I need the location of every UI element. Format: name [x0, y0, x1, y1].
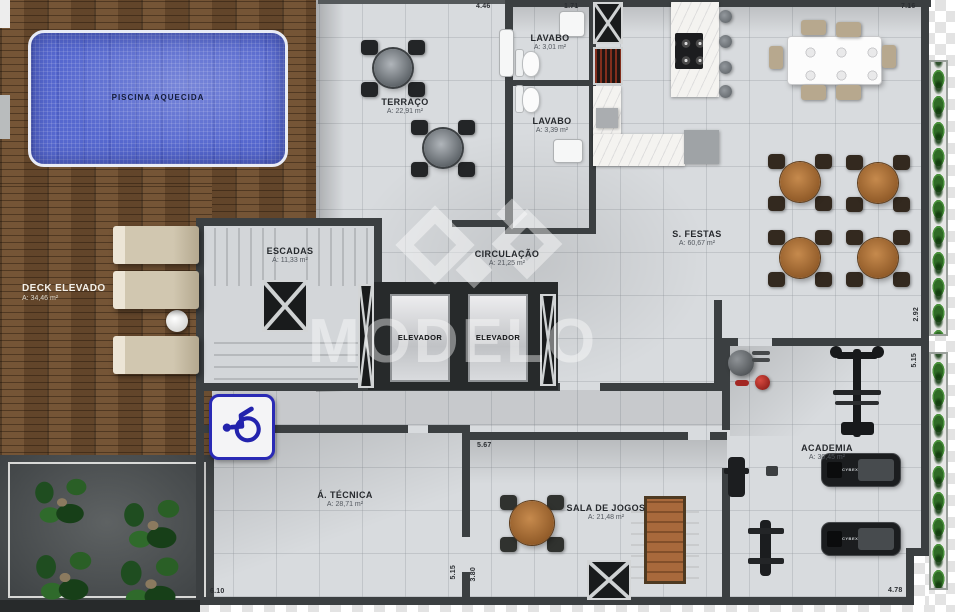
wheelchair-icon — [209, 394, 275, 460]
room-name: LAVABO — [516, 116, 588, 127]
toilet — [523, 88, 539, 112]
chair — [815, 230, 832, 245]
wall — [470, 432, 688, 440]
exercise-ball — [728, 350, 754, 376]
gym-equipment — [752, 351, 770, 355]
elevator-label: ELEVADOR — [388, 333, 452, 342]
chair — [768, 154, 785, 169]
cooktop — [675, 33, 703, 69]
room-name: Á. TÉCNICA — [290, 490, 400, 501]
kitchen-cabinet — [684, 130, 719, 164]
chair — [882, 45, 896, 68]
gym-equipment — [835, 401, 879, 405]
round-table — [374, 49, 412, 87]
room-area: A: 30,45 m² — [777, 454, 877, 462]
escadas-label: ESCADAS A: 11,33 m² — [240, 246, 340, 265]
gym-equipment — [728, 457, 745, 497]
room-area: A: 22,91 m² — [355, 108, 455, 116]
stool — [719, 35, 732, 48]
dimension-label: 6.10 — [210, 588, 224, 595]
room-name: ESCADAS — [240, 246, 340, 257]
pool-label: PISCINA AQUECIDA — [58, 93, 258, 103]
room-name: CIRCULAÇÃO — [452, 249, 562, 260]
terraco-label: TERRAÇO A: 22,91 m² — [355, 97, 455, 116]
chair — [815, 196, 832, 211]
chair — [893, 155, 910, 170]
chair — [768, 196, 785, 211]
room-name: DECK ELEVADO — [22, 283, 162, 295]
treadmill-belt — [858, 459, 894, 481]
round-table — [858, 163, 898, 203]
chair — [836, 22, 861, 37]
gym-equipment — [748, 528, 784, 534]
room-area: A: 34,46 m² — [22, 295, 162, 303]
floor-plan: PISCINA AQUECIDA ELEVADOR ELEVADOR — [0, 0, 955, 612]
wall — [462, 572, 470, 605]
room-name: S. FESTAS — [642, 229, 752, 240]
dimension-label: 5.15 — [450, 565, 457, 579]
chair — [547, 537, 564, 552]
chair — [500, 537, 517, 552]
gym-equipment — [841, 422, 874, 435]
sfestas-label: S. FESTAS A: 60,67 m² — [642, 229, 752, 248]
chair — [801, 85, 826, 100]
wall — [921, 346, 929, 552]
stool — [719, 85, 732, 98]
room-area: A: 60,67 m² — [642, 240, 752, 248]
chair — [846, 272, 863, 287]
gym-equipment — [735, 380, 749, 386]
stool — [719, 10, 732, 23]
duct-shaft — [587, 560, 631, 600]
treadmill-console — [827, 531, 842, 547]
wall — [462, 425, 470, 537]
chair — [893, 197, 910, 212]
dimension-label: 4.78 — [888, 587, 902, 594]
chair — [458, 120, 475, 135]
wall — [772, 338, 929, 346]
transparency-notch — [914, 552, 929, 605]
chair — [408, 40, 425, 55]
treadmill-console — [827, 462, 842, 478]
gym-equipment — [872, 346, 884, 358]
toilet-tank — [516, 86, 523, 112]
chair — [768, 272, 785, 287]
toilet-tank — [516, 50, 523, 76]
room-area: A: 11,33 m² — [240, 257, 340, 265]
round-table — [424, 129, 462, 167]
chair — [361, 40, 378, 55]
room-area: A: 21,25 m² — [452, 260, 562, 268]
chair — [846, 155, 863, 170]
chair — [801, 20, 826, 35]
chair — [411, 120, 428, 135]
dimension-label: 2.92 — [913, 307, 920, 321]
medicine-ball — [755, 375, 770, 390]
treadmill-brand-label: CYBEX — [842, 536, 858, 541]
wall — [196, 597, 908, 605]
round-table — [780, 238, 820, 278]
side-table — [166, 310, 188, 332]
pool-name: PISCINA AQUECIDA — [58, 93, 258, 103]
dimension-label: 3.80 — [470, 567, 477, 581]
barbecue-grill — [593, 47, 623, 85]
wall — [921, 7, 929, 342]
room-name: LAVABO — [514, 33, 586, 44]
service-table — [596, 108, 618, 128]
hedge-planter — [929, 60, 948, 336]
gym-equipment — [724, 468, 749, 474]
sun-lounger — [113, 336, 199, 374]
circulacao-label: CIRCULAÇÃO A: 21,25 m² — [452, 249, 562, 268]
duct-shaft — [593, 2, 623, 44]
treadmill-belt — [858, 528, 894, 550]
wall — [710, 432, 727, 440]
elevator-label: ELEVADOR — [466, 333, 530, 342]
toilet — [523, 52, 539, 76]
lavabo1-label: LAVABO A: 3,01 m² — [514, 33, 586, 52]
washbasin — [554, 140, 582, 162]
dimension-label: 1.71 — [564, 3, 578, 10]
chair — [361, 82, 378, 97]
chair — [846, 230, 863, 245]
stool — [719, 61, 732, 74]
dimension-label: 5.15 — [911, 353, 918, 367]
round-table — [510, 501, 554, 545]
wall — [600, 383, 722, 391]
treadmill-brand-label: CYBEX — [842, 467, 858, 472]
wall — [906, 548, 929, 556]
outdoor-shower — [500, 30, 513, 76]
sun-lounger — [113, 226, 199, 264]
dimension-label: 7.16 — [901, 3, 915, 10]
chair — [769, 46, 783, 69]
atecnica-label: Á. TÉCNICA A: 28,71 m² — [290, 490, 400, 509]
chair — [846, 197, 863, 212]
room-name: SALA DE JOGOS — [556, 503, 656, 514]
round-table — [780, 162, 820, 202]
deck-label: DECK ELEVADO A: 34,46 m² — [22, 283, 162, 303]
dimension-label: 5.67 — [477, 442, 491, 449]
kitchen-counter — [593, 134, 685, 166]
chair — [893, 230, 910, 245]
room-name: ACADEMIA — [777, 443, 877, 454]
room-area: A: 21,48 m² — [556, 514, 656, 522]
chair — [408, 82, 425, 97]
chair — [768, 230, 785, 245]
room-area: A: 3,01 m² — [514, 44, 586, 52]
gym-equipment — [766, 466, 778, 476]
hedge-planter — [929, 352, 948, 590]
chair — [458, 162, 475, 177]
edge-step — [0, 95, 10, 139]
wheelchair-glyph — [218, 403, 266, 451]
gym-equipment — [752, 358, 770, 362]
wall — [196, 218, 382, 226]
chair — [815, 154, 832, 169]
treadmill: CYBEX — [822, 523, 900, 555]
lavabo2-label: LAVABO A: 3,39 m² — [516, 116, 588, 135]
gym-equipment — [830, 346, 842, 358]
stair-shaft — [262, 280, 308, 332]
wall — [714, 300, 722, 391]
wall — [0, 600, 200, 612]
gym-equipment — [833, 390, 881, 395]
gym-equipment — [748, 558, 784, 564]
room-name: TERRAÇO — [355, 97, 455, 108]
wall — [722, 338, 738, 346]
watermark: MODELO — [308, 306, 598, 377]
chair — [836, 85, 861, 100]
dimension-label: 4.46 — [476, 3, 490, 10]
chair — [815, 272, 832, 287]
round-table — [858, 238, 898, 278]
salajogos-label: SALA DE JOGOS A: 21,48 m² — [556, 503, 656, 522]
room-area: A: 28,71 m² — [290, 501, 400, 509]
edge-notch — [0, 0, 10, 28]
potted-plant — [22, 466, 102, 536]
chair — [893, 272, 910, 287]
dining-table — [788, 37, 881, 84]
academia-label: ACADEMIA A: 30,45 m² — [777, 443, 877, 462]
wall — [452, 220, 505, 227]
chair — [411, 162, 428, 177]
room-area: A: 3,39 m² — [516, 127, 588, 135]
